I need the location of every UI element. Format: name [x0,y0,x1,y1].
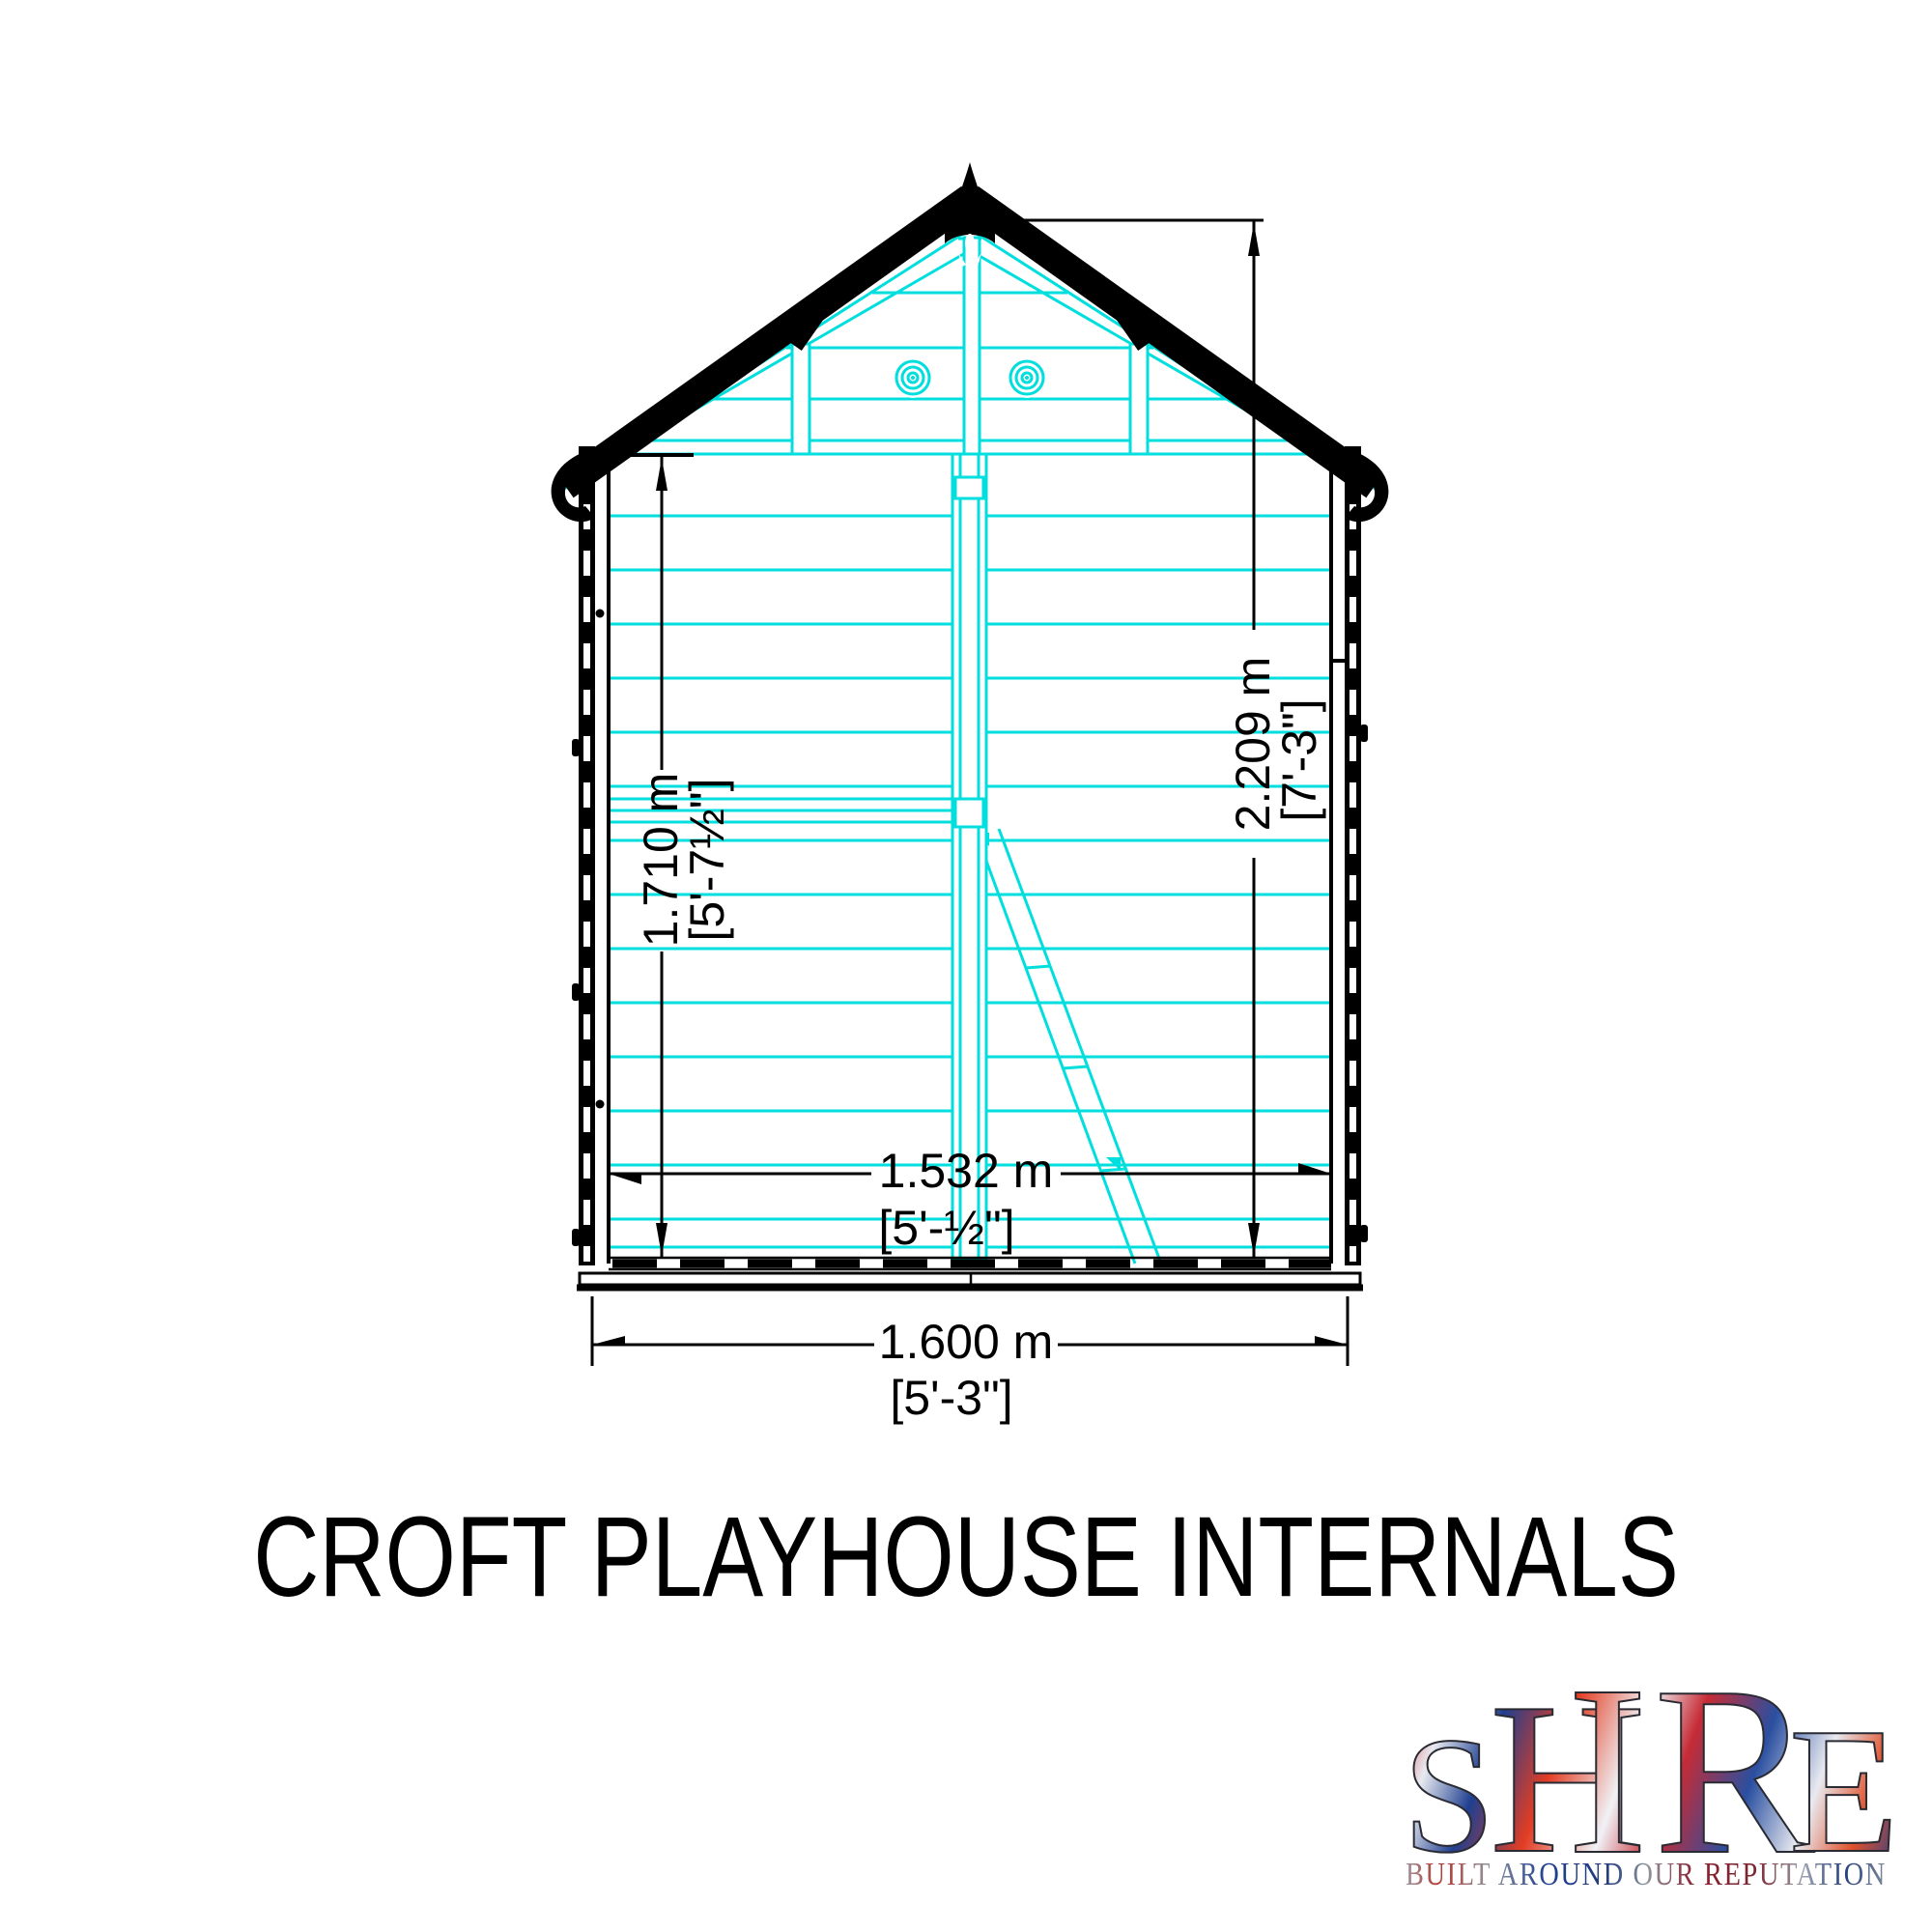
wall-peg-dot [596,1100,605,1109]
ladder-brace [974,827,1161,1264]
gable-centre-stud [964,238,980,454]
shire-logo: S H I R E BUILT AROUND OUR REPUTATION [1403,1634,1899,1905]
dimension-eaves-height: 1.710 m [5'-7½"] [622,455,734,1258]
ridge-height-imperial: [7'-3"] [1272,698,1326,821]
external-width-imperial: [5'-3"] [890,1371,1012,1425]
dimension-external-width: 1.600 m [5'-3"] [592,1296,1348,1425]
hinge-bump [572,739,580,756]
dimension-ridge-height: 2.209 m [7'-3"] [1012,220,1326,1258]
hinge-bump [572,1229,580,1246]
hinge-bump [1360,724,1368,742]
internal-width-imperial: [5'-½"] [878,1201,1014,1255]
hinge-bump [1360,1225,1368,1242]
door-post [952,454,986,1260]
wall-peg-dot [596,610,605,618]
eaves-height-imperial: [5'-7½"] [680,778,734,941]
hinge-bump [572,983,580,1001]
internal-width-metric: 1.532 m [879,1144,1054,1198]
drawing-page: 1.710 m [5'-7½"] 2.209 m [7'-3"] 1.532 m… [0,0,1932,1932]
floor [577,1258,1363,1288]
playhouse-internals-drawing: 1.710 m [5'-7½"] 2.209 m [7'-3"] 1.532 m… [0,0,1932,1932]
page-title: CROFT PLAYHOUSE INTERNALS [253,1492,1679,1621]
external-width-metric: 1.600 m [879,1315,1054,1369]
logo-tagline: BUILT AROUND OUR REPUTATION [1406,1857,1887,1892]
